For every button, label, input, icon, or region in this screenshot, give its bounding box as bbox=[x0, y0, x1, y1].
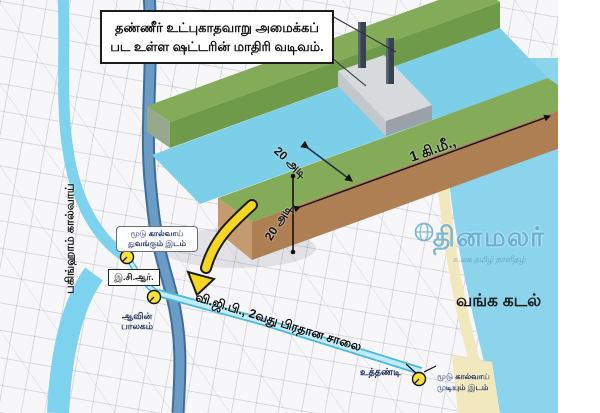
infographic-canvas: தண்ணீர் உட்புகாதவாறு அமைக்கப் பட உள்ள ஷட… bbox=[0, 0, 600, 413]
title-box: தண்ணீர் உட்புகாதவாறு அமைக்கப் பட உள்ள ஷட… bbox=[100, 10, 334, 64]
marker-aavin bbox=[148, 291, 161, 304]
aavin-line-1: ஆவின் bbox=[108, 311, 166, 321]
aavin-label: ஆவின் பாலகம் bbox=[108, 311, 166, 332]
marker-canal-start bbox=[121, 251, 134, 264]
shutter-post-1-highlight bbox=[358, 22, 361, 68]
title-line-1: தண்ணீர் உட்புகாதவாறு அமைக்கப் bbox=[115, 18, 319, 38]
ecr-label: இ.சி.ஆர். bbox=[108, 269, 160, 286]
canal-start-line-2: துவங்கும் இடம் bbox=[119, 239, 195, 249]
marker-canal-end bbox=[413, 373, 426, 386]
sea-label: வங்க கடல் bbox=[456, 291, 541, 311]
canal-end-line-1: மூடு கால்வாய் bbox=[437, 372, 515, 383]
shutter-post-2-highlight bbox=[386, 38, 389, 84]
aavin-line-2: பாலகம் bbox=[108, 321, 166, 331]
title-line-2: பட உள்ள ஷட்டரின் மாதிரி வடிவம். bbox=[110, 37, 324, 57]
globe-icon bbox=[414, 222, 434, 242]
logo-text-right: மலர் bbox=[484, 222, 545, 257]
canal-end-line-2: முடியும் இடம் bbox=[437, 383, 515, 394]
uthandi-label: உத்தண்டி bbox=[360, 368, 401, 379]
marker-end-elbow bbox=[424, 366, 436, 372]
depth-line-dot-bottom bbox=[291, 250, 296, 255]
logo-text-left: தின bbox=[433, 222, 483, 257]
buckingham-canal-label: பகிங்ஹாம் கால்வாய் bbox=[64, 149, 77, 329]
newspaper-watermark: தின மலர் உலக தமிழ் நாளிதழ் bbox=[414, 222, 564, 265]
right-margin bbox=[558, 0, 600, 413]
canal-end-label: மூடு கால்வாய் முடியும் இடம் bbox=[437, 372, 515, 394]
canal-start-label: மூடு கால்வாய் துவங்கும் இடம் bbox=[116, 226, 198, 252]
canal-start-line-1: மூடு கால்வாய் bbox=[119, 229, 195, 239]
